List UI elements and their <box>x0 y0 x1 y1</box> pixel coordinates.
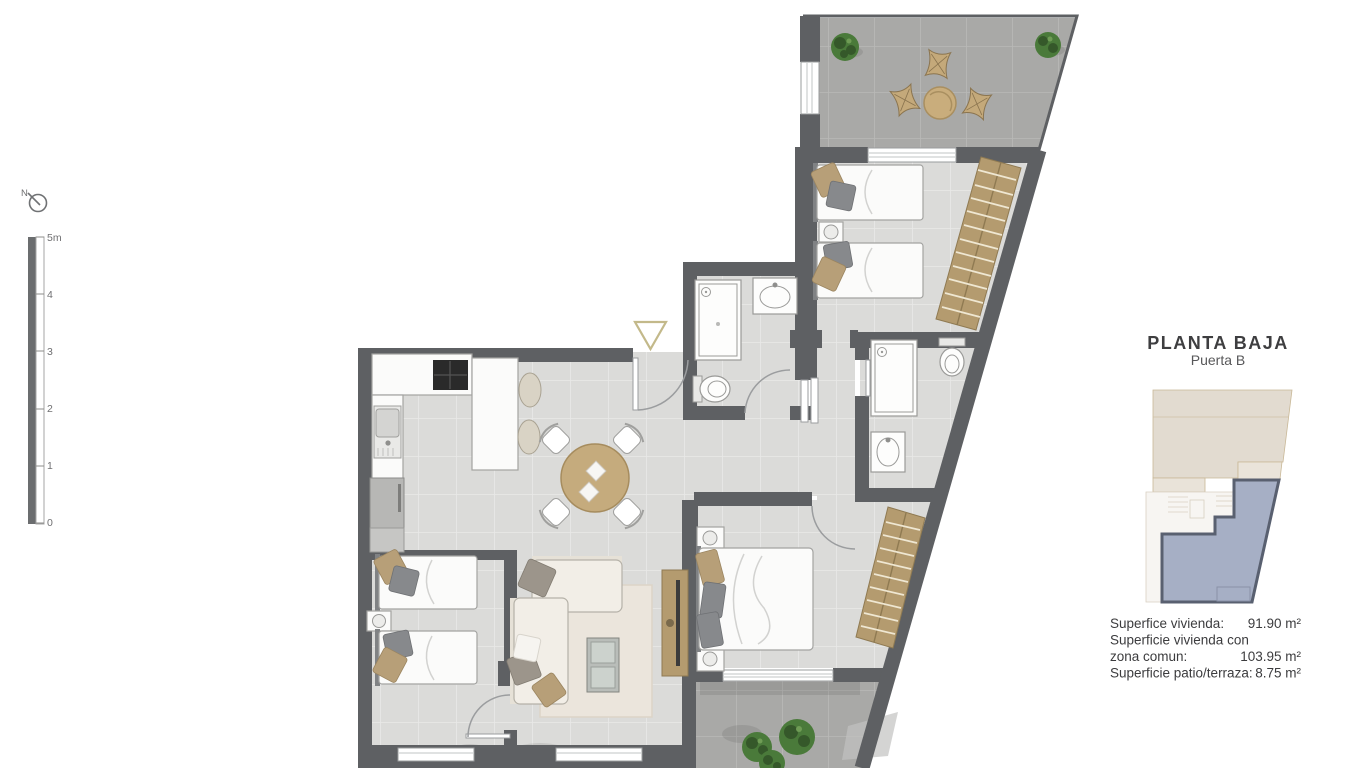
plant <box>831 33 859 61</box>
scale-label-3: 3 <box>47 346 53 358</box>
area-value-zona-comun: 103.95 m² <box>1240 649 1301 664</box>
scale-label-0: 0 <box>47 517 53 529</box>
corridor-floor <box>817 340 855 500</box>
area-label-zona-comun-1: Superficie vivienda con <box>1110 633 1249 648</box>
scale-label-5m: 5m <box>47 232 62 244</box>
north-indicator: N <box>21 188 47 212</box>
stool <box>518 420 540 454</box>
sink <box>871 432 905 472</box>
plant <box>1035 32 1061 58</box>
terrace-west-window <box>801 62 819 114</box>
terrace-table <box>924 87 956 119</box>
island <box>472 358 518 470</box>
scale-label-4: 4 <box>47 289 53 301</box>
toilet <box>939 338 965 376</box>
fridge <box>370 478 404 552</box>
tv <box>676 580 680 666</box>
tv-unit <box>662 570 688 676</box>
north-label: N <box>21 188 28 199</box>
scale-bar: 5m 4 3 2 1 0 <box>28 232 62 529</box>
living-south-window-2 <box>556 748 642 761</box>
stool <box>519 373 541 407</box>
coffee-table <box>587 638 619 692</box>
bedroom-1-window <box>868 148 956 162</box>
info-panel: PLANTA BAJA Puerta B Superfice vivienda:… <box>1110 333 1301 681</box>
scale-label-1: 1 <box>47 460 53 472</box>
area-label-vivienda: Superfice vivienda: <box>1110 616 1224 631</box>
area-value-patio: 8.75 m² <box>1255 666 1301 681</box>
areas-table: Superfice vivienda: 91.90 m² Superficie … <box>1110 616 1301 681</box>
master-window <box>723 670 833 681</box>
page-title: PLANTA BAJA <box>1147 333 1289 353</box>
area-label-patio: Superficie patio/terraza: <box>1110 666 1253 681</box>
entrance-marker-triangle <box>635 322 666 349</box>
floorplan-page: N 5m 4 3 2 1 0 PLANTA BAJA Puerta B <box>0 0 1366 768</box>
page-subtitle: Puerta B <box>1191 352 1245 368</box>
plant <box>779 719 815 755</box>
scale-label-2: 2 <box>47 403 53 415</box>
toilet <box>693 376 730 402</box>
keyplan <box>1146 390 1292 602</box>
floorplan-svg: N 5m 4 3 2 1 0 PLANTA BAJA Puerta B <box>0 0 1366 768</box>
area-value-vivienda: 91.90 m² <box>1248 616 1302 631</box>
floor-plan <box>358 16 1077 768</box>
living-south-window-1 <box>398 748 474 761</box>
patio-shadow <box>700 682 860 695</box>
sink <box>753 278 797 314</box>
area-label-zona-comun-2: zona comun: <box>1110 649 1187 664</box>
kitchen-sink <box>374 406 401 458</box>
